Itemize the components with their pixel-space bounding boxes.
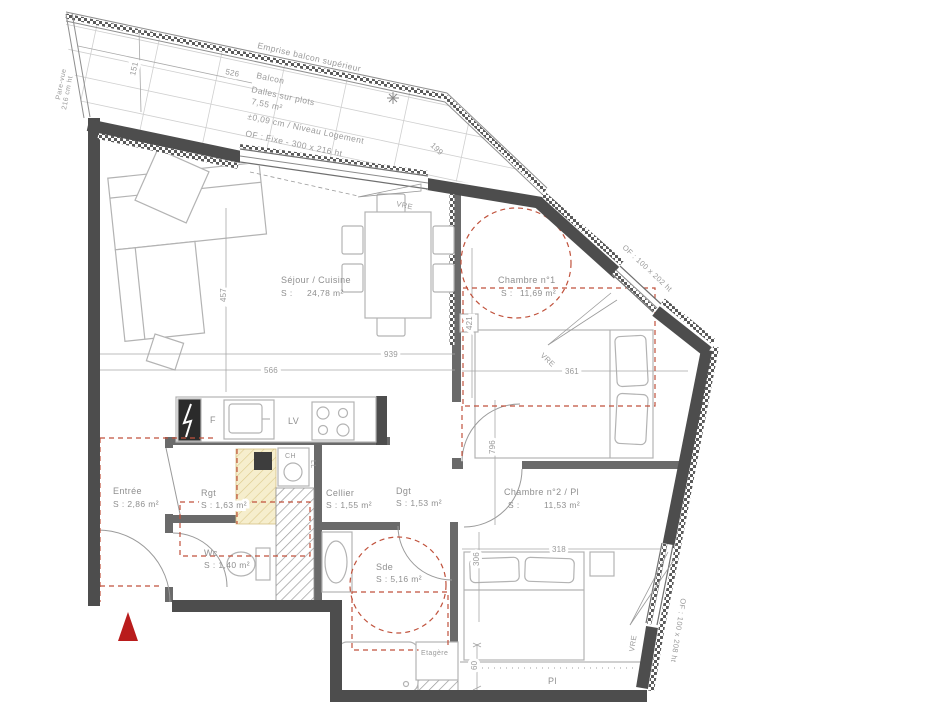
entree-name: Entrée bbox=[113, 486, 142, 496]
dim-526: 526 bbox=[225, 67, 241, 79]
turning-circle-sde bbox=[350, 537, 446, 633]
dim-361: 361 bbox=[565, 367, 579, 376]
floor-plan: Emprise balcon supérieur 526 Balcon Dall… bbox=[0, 0, 940, 705]
cellier-name: Cellier bbox=[326, 488, 354, 498]
emprise-hatch-edge-right bbox=[446, 97, 545, 191]
wc-name: Wc bbox=[204, 548, 218, 558]
chambre-divider-wall bbox=[522, 461, 688, 469]
etagere-niche bbox=[416, 642, 458, 680]
washer-label: LL bbox=[309, 460, 316, 469]
dim-306: 306 bbox=[472, 552, 481, 566]
dining-set bbox=[342, 194, 454, 336]
floor-plan-drawing: Emprise balcon supérieur 526 Balcon Dall… bbox=[0, 0, 940, 705]
sde-top-wall bbox=[322, 522, 400, 530]
technical-shaft-hatch bbox=[276, 488, 314, 602]
sde-door-arc bbox=[398, 526, 452, 580]
kitchen-counter bbox=[176, 397, 376, 442]
sejour-name: Séjour / Cuisine bbox=[281, 275, 351, 285]
fridge-label: F bbox=[210, 415, 216, 425]
bed-chambre2 bbox=[464, 552, 614, 660]
dim-566: 566 bbox=[264, 366, 278, 375]
balcony-drain-symbol bbox=[387, 92, 399, 104]
vre-label-lower-right: VRE bbox=[627, 634, 638, 652]
chambre2-area: 11,53 m² bbox=[544, 500, 580, 510]
dim-939: 939 bbox=[384, 350, 398, 359]
dishwasher-label: LV bbox=[288, 416, 299, 426]
dim-457: 457 bbox=[219, 288, 228, 302]
cellier-area: S : 1,55 m² bbox=[326, 500, 372, 510]
dim-796: 796 bbox=[488, 440, 497, 454]
rgt-area: S : 1,63 m² bbox=[201, 500, 247, 510]
sde-name: Sde bbox=[376, 562, 393, 572]
sejour-s: S : bbox=[281, 288, 293, 298]
wall-right-upper bbox=[668, 350, 707, 547]
wall-top-right bbox=[427, 184, 542, 203]
dgt-name: Dgt bbox=[396, 486, 411, 496]
rgt-door-leaf bbox=[166, 448, 180, 514]
entree-area: S : 2,86 m² bbox=[113, 499, 159, 509]
entrance-arrow bbox=[118, 612, 138, 641]
wc-area: S : 1,40 m² bbox=[204, 560, 250, 570]
balcon-label: Balcon bbox=[256, 70, 286, 86]
shower-tray bbox=[338, 642, 418, 692]
coffee-table bbox=[146, 334, 183, 370]
dining-table bbox=[365, 212, 431, 318]
chambre1-s: S : bbox=[501, 288, 513, 298]
dim-199: 199 bbox=[429, 141, 446, 157]
dim-318: 318 bbox=[552, 545, 566, 554]
boiler-label: CH bbox=[285, 453, 296, 460]
chambre-divider-stub bbox=[455, 461, 463, 469]
entry-wall-mid bbox=[165, 514, 173, 533]
sde-area: S : 5,16 m² bbox=[376, 574, 422, 584]
wall-diagonal-upper bbox=[538, 202, 618, 274]
entrance-door-arc bbox=[98, 530, 170, 602]
sejour-area: 24,78 m² bbox=[307, 288, 344, 298]
chambre2-s: S : bbox=[508, 500, 520, 510]
placard-strip bbox=[460, 662, 645, 668]
nightstand bbox=[590, 552, 614, 576]
etagere-label: Etagère bbox=[421, 650, 448, 657]
rgt-dark-box bbox=[254, 452, 272, 470]
dim-60: 60 bbox=[470, 660, 479, 670]
bed-chambre1 bbox=[460, 314, 653, 458]
washbasin bbox=[322, 532, 352, 592]
entry-wall-upper bbox=[165, 437, 173, 448]
dim-421: 421 bbox=[465, 316, 474, 330]
chambre2-name: Chambre n°2 / Pl bbox=[504, 487, 579, 497]
chambre1-name: Chambre n°1 bbox=[498, 275, 556, 285]
rgt-name: Rgt bbox=[201, 488, 216, 498]
chambre1-area: 11,69 m² bbox=[520, 288, 556, 298]
of-lower-right-label: OF : 100 x 208 ht bbox=[669, 598, 688, 664]
placard-label: Pl bbox=[548, 676, 557, 686]
chambre2-door-arc bbox=[464, 469, 522, 527]
dgt-area: S : 1,53 m² bbox=[396, 498, 442, 508]
kitchen-wall-stub bbox=[376, 396, 387, 445]
dim-151: 151 bbox=[128, 60, 140, 76]
